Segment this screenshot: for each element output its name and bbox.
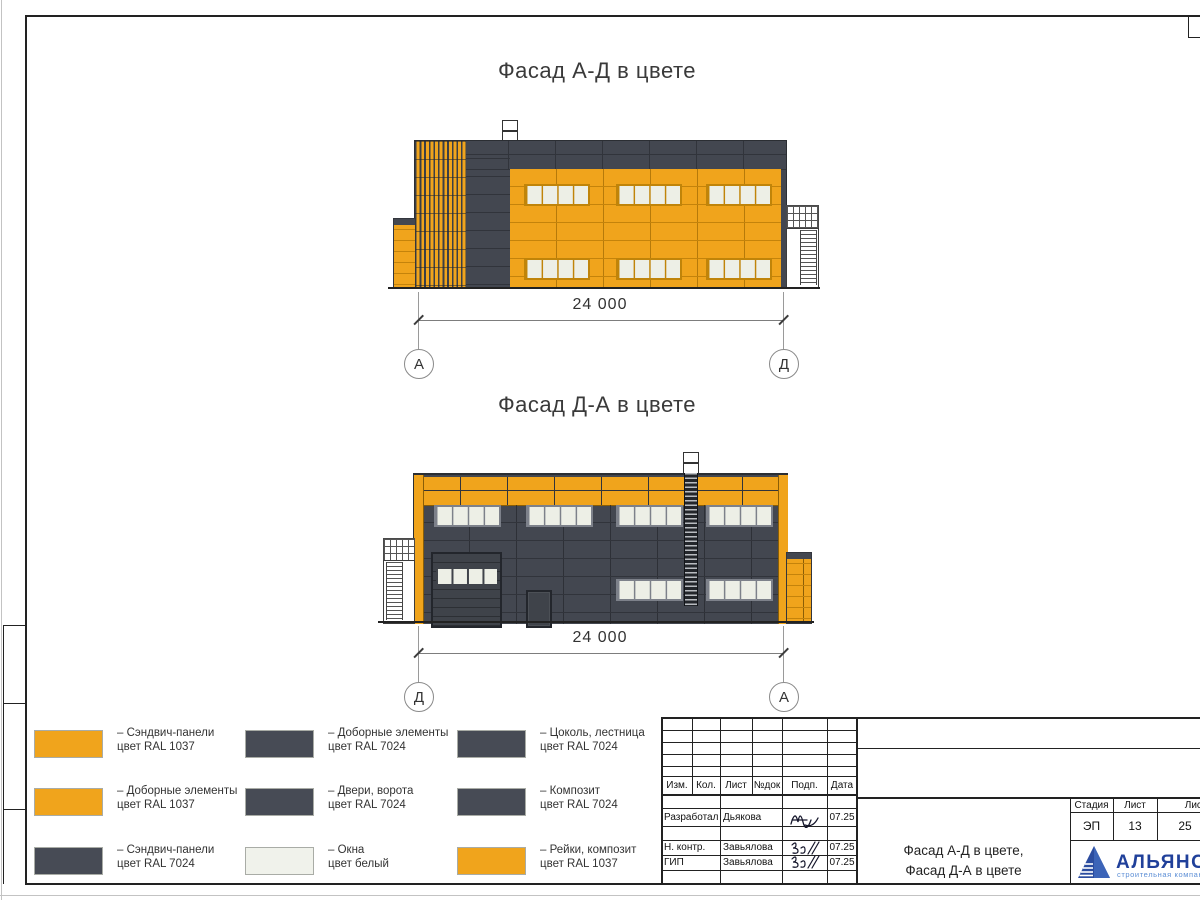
window-strip — [706, 184, 772, 206]
signature-icon — [787, 806, 823, 828]
legend-label: – Сэндвич-панели цвет RAL 1037 — [117, 727, 214, 754]
dimension-label: 24 000 — [500, 629, 700, 647]
legend-label-line2: цвет RAL 7024 — [328, 799, 413, 813]
legend-label-line1: – Сэндвич-панели — [117, 844, 214, 858]
legend-label-line1: – Композит — [540, 785, 618, 799]
titleblock-line — [662, 754, 857, 755]
window-strip — [706, 258, 772, 280]
titleblock-line — [1070, 840, 1200, 841]
legend-label-line1: – Двери, ворота — [328, 785, 413, 799]
signature-icon — [789, 854, 823, 869]
sheet-header: Лист — [1113, 798, 1157, 812]
doc-title-line2: Фасад Д-А в цвете — [858, 863, 1069, 878]
axis-marker-left: Д — [404, 682, 434, 712]
window-strip — [616, 579, 683, 601]
facade1-ground-line — [388, 287, 820, 289]
stage-value: ЭП — [1070, 812, 1113, 840]
side-box-divider — [3, 703, 25, 704]
doc-title-line1: Фасад А-Д в цвете, — [858, 843, 1069, 858]
signoff-date: 07.25 — [827, 855, 857, 870]
window-strip — [616, 184, 682, 206]
window-strip — [434, 505, 501, 527]
signoff-role: Разработал — [664, 808, 720, 826]
sectional-gate — [431, 552, 502, 628]
window-strip — [616, 505, 683, 527]
legend-swatch — [245, 730, 314, 758]
legend-swatch — [245, 788, 314, 816]
legend-label-line1: – Доборные элементы — [117, 785, 237, 799]
titleblock-line — [661, 717, 1200, 719]
side-box-divider — [3, 809, 25, 810]
facade2-stair — [383, 560, 415, 624]
signoff-date: 07.25 — [827, 840, 857, 855]
facade2-annex-cap — [787, 553, 811, 559]
legend-label: – Окна цвет белый — [328, 844, 389, 871]
legend-swatch — [34, 847, 103, 875]
legend-label: – Сэндвич-панели цвет RAL 7024 — [117, 844, 214, 871]
axis-marker-right: Д — [769, 349, 799, 379]
signoff-date: 07.25 — [827, 808, 857, 826]
facade1-stair-railing — [786, 205, 819, 230]
dimension-line — [418, 653, 783, 654]
legend-label-line2: цвет RAL 7024 — [540, 799, 618, 813]
revision-header-data: Дата — [827, 776, 857, 794]
legend-label-line1: – Цоколь, лестница — [540, 727, 645, 741]
legend-label-line1: – Окна — [328, 844, 389, 858]
legend-label-line2: цвет RAL 7024 — [540, 741, 645, 755]
facade2-stair-railing — [383, 538, 415, 562]
legend-label-line1: – Сэндвич-панели — [117, 727, 214, 741]
signoff-role: Н. контр. — [664, 840, 720, 855]
titleblock-line — [662, 742, 857, 743]
titleblock-line — [857, 748, 1200, 749]
revision-header-ndoc: №док — [752, 776, 782, 794]
legend-label-line2: цвет RAL 1037 — [117, 799, 237, 813]
revision-header-izm: Изм. — [662, 776, 692, 794]
facade2-title: Фасад Д-А в цвете — [357, 392, 837, 418]
axis-marker-left: А — [404, 349, 434, 379]
window-strip — [706, 505, 773, 527]
facade2-orange-band — [414, 477, 787, 506]
sheets-header: Листов — [1157, 798, 1200, 812]
signoff-name: Дьякова — [723, 808, 781, 826]
legend-label: – Рейки, композит цвет RAL 1037 — [540, 844, 636, 871]
paper-edge-bottom — [0, 895, 1200, 896]
frame-corner-box — [1188, 15, 1200, 38]
company-logo: АЛЬЯНС строительная компания — [1076, 844, 1200, 882]
titleblock-line — [662, 826, 857, 827]
window-strip — [526, 505, 593, 527]
facade1-rails-zone — [415, 141, 466, 288]
facade2-building — [413, 473, 788, 624]
window-strip — [616, 258, 682, 280]
legend-swatch — [34, 730, 103, 758]
facade2-annex — [786, 552, 812, 624]
facade1-roof-hatch — [502, 120, 518, 142]
facade1-annex-cap — [394, 219, 415, 225]
facade1-dark-panel-zone — [466, 141, 510, 288]
titleblock-line — [662, 766, 857, 767]
legend-label: – Доборные элементы цвет RAL 7024 — [328, 727, 448, 754]
legend-swatch — [457, 847, 526, 875]
facade1-annex — [393, 218, 416, 289]
titleblock-line — [662, 870, 857, 871]
revision-header-kol: Кол. — [692, 776, 720, 794]
window-strip — [524, 184, 590, 206]
side-box-edge — [3, 625, 4, 884]
signoff-role: ГИП — [664, 855, 720, 870]
facade1-stair-ladder — [800, 230, 817, 285]
legend-swatch — [457, 730, 526, 758]
signoff-name: Завьялова — [723, 840, 781, 855]
facade2-roof-hatch — [683, 452, 699, 475]
legend-label: – Композит цвет RAL 7024 — [540, 785, 618, 812]
window-strip — [706, 579, 773, 601]
stage-header: Стадия — [1070, 798, 1113, 812]
frame-left — [25, 15, 27, 884]
sheets-value: 25 — [1157, 812, 1200, 840]
facade2-stair-ladder — [386, 562, 403, 620]
facade1-title: Фасад А-Д в цвете — [357, 58, 837, 84]
legend-label-line2: цвет RAL 7024 — [328, 741, 448, 755]
legend-swatch — [245, 847, 314, 875]
sheet-value: 13 — [1113, 812, 1157, 840]
legend-label: – Доборные элементы цвет RAL 1037 — [117, 785, 237, 812]
frame-top — [25, 15, 1200, 17]
facade2-roof-ladder — [684, 473, 698, 606]
titleblock-line — [662, 794, 857, 796]
titleblock-line — [662, 730, 857, 731]
legend-swatch — [34, 788, 103, 816]
signature-icon — [789, 840, 823, 855]
legend-label-line2: цвет RAL 7024 — [117, 858, 214, 872]
logo-tagline: строительная компания — [1117, 870, 1200, 879]
paper-edge-left — [1, 0, 2, 900]
revision-header-podp: Подп. — [782, 776, 827, 794]
legend-label-line2: цвет RAL 1037 — [117, 741, 214, 755]
legend-label: – Двери, ворота цвет RAL 7024 — [328, 785, 413, 812]
gate-window-strip — [436, 569, 497, 584]
legend-label-line2: цвет белый — [328, 858, 389, 872]
facade2-left-trim — [414, 475, 424, 624]
revision-header-list: Лист — [720, 776, 752, 794]
legend-label-line1: – Доборные элементы — [328, 727, 448, 741]
facade1-stair — [786, 228, 819, 289]
dimension-label: 24 000 — [500, 296, 700, 314]
legend-label-line2: цвет RAL 1037 — [540, 858, 636, 872]
drawing-sheet: Фасад А-Д в цвете 24 000 А Д Фасад Д-А в… — [0, 0, 1200, 900]
side-box-divider — [3, 625, 25, 626]
legend-label: – Цоколь, лестница цвет RAL 7024 — [540, 727, 645, 754]
legend-label-line1: – Рейки, композит — [540, 844, 636, 858]
signoff-name: Завьялова — [723, 855, 781, 870]
legend-swatch — [457, 788, 526, 816]
facade2-ground-line — [378, 621, 814, 623]
window-strip — [524, 258, 590, 280]
axis-marker-right: А — [769, 682, 799, 712]
dimension-line — [418, 320, 783, 321]
facade1-building — [414, 140, 787, 289]
frame-bottom — [25, 883, 1200, 885]
